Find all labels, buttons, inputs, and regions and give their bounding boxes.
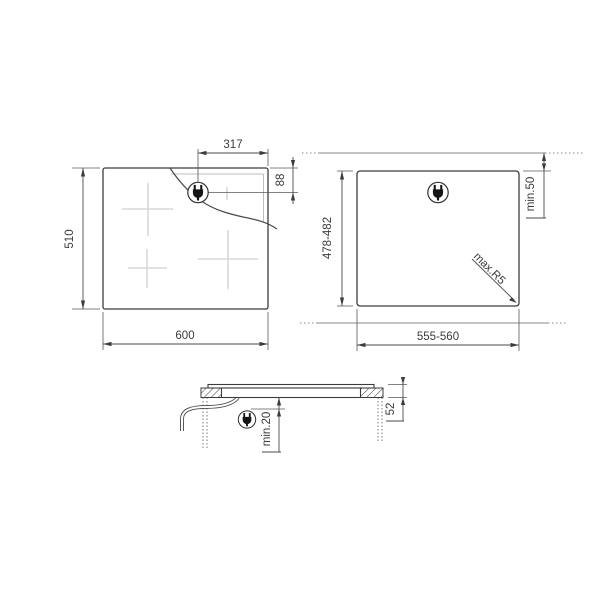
cutout-view: 478-482 555-560 min.50 max.R5 [300,153,583,351]
dim-top-width: 600 [103,312,268,350]
dim-under-clearance: min.20 [251,398,285,453]
burner-cross [198,230,258,289]
top-view: 317 88 510 600 [64,139,298,350]
dim-cutout-depth-label: 478-482 [322,217,334,259]
hob-outline [103,168,268,309]
break-curve [170,168,277,229]
dim-build-in-depth: 52 [385,377,407,421]
dim-under-clearance-label: min.20 [261,412,273,447]
corner-radius-callout: max.R5 [471,251,517,303]
dim-rear-clearance-label: min.50 [525,177,537,212]
dim-plug-from-right: 317 [198,139,268,182]
worktop-section-right [361,388,384,398]
power-plug-icon [188,182,208,202]
hob-body-section [222,388,361,398]
section-view: min.20 52 [182,377,407,452]
glass-inner-edge [171,174,264,222]
power-plug-icon [238,411,255,428]
burner-cross [122,183,173,236]
dim-cutout-width: 555-560 [357,309,519,351]
power-plug-icon [428,182,448,202]
dim-top-depth: 510 [64,168,100,309]
worktop-section-left [201,388,222,398]
diagram-svg: 317 88 510 600 [0,0,600,600]
dim-top-width-label: 600 [175,330,194,342]
dim-build-in-depth-label: 52 [385,403,397,416]
hob-installation-diagram: 317 88 510 600 [0,0,600,600]
dim-plug-from-top-label: 88 [275,174,287,187]
burner-cross [128,249,167,288]
dim-cutout-depth: 478-482 [322,171,353,306]
corner-radius-label: max.R5 [471,251,508,288]
dim-plug-from-right-label: 317 [223,139,242,151]
dim-top-depth-label: 510 [64,229,76,248]
power-cable [182,398,238,432]
dim-plug-from-top: 88 [209,157,299,204]
dim-cutout-width-label: 555-560 [417,331,459,343]
dim-rear-clearance: min.50 [523,153,551,218]
